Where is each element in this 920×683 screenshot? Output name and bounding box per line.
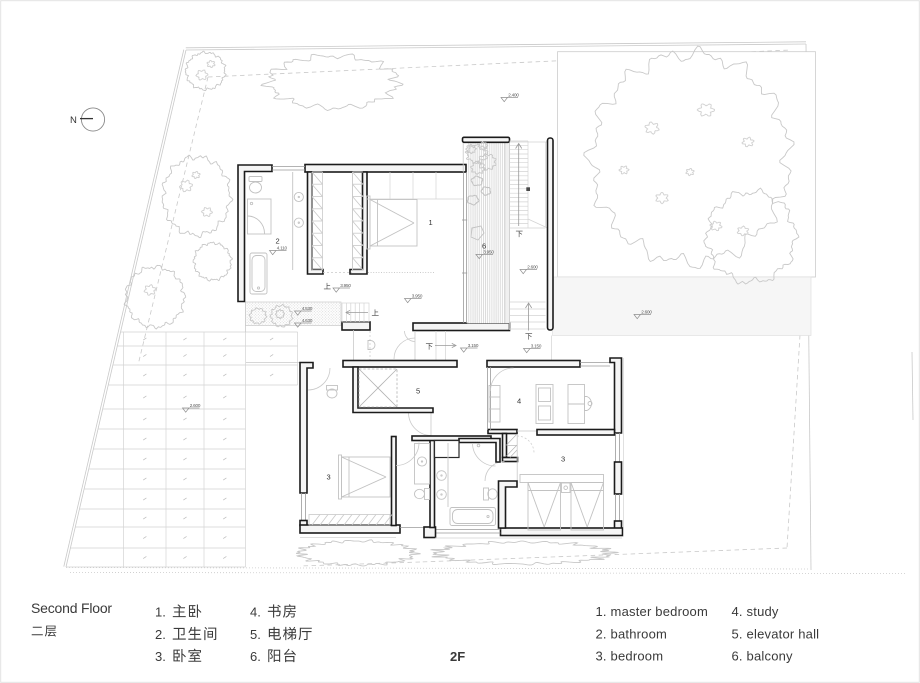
svg-text:4.530: 4.530: [302, 306, 313, 311]
svg-text:5. elevator hall: 5. elevator hall: [732, 627, 820, 642]
svg-text:6. balcony: 6. balcony: [732, 649, 794, 664]
svg-text:3.950: 3.950: [412, 293, 423, 298]
svg-text:4. study: 4. study: [732, 604, 779, 619]
svg-text:1: 1: [429, 218, 433, 227]
svg-text:4.: 4.: [250, 605, 261, 620]
svg-text:3: 3: [327, 473, 331, 482]
svg-text:3.150: 3.150: [468, 343, 479, 348]
svg-text:2.600: 2.600: [527, 264, 538, 269]
svg-text:2. bathroom: 2. bathroom: [596, 627, 668, 642]
svg-text:5: 5: [416, 387, 420, 396]
svg-text:3.950: 3.950: [483, 249, 494, 254]
svg-text:2: 2: [276, 237, 280, 246]
svg-text:Second Floor: Second Floor: [31, 600, 112, 616]
svg-text:2F: 2F: [450, 649, 465, 664]
svg-text:4.110: 4.110: [277, 245, 288, 250]
svg-text:1. master bedroom: 1. master bedroom: [596, 604, 709, 619]
svg-text:3. bedroom: 3. bedroom: [596, 649, 664, 664]
svg-text:2.600: 2.600: [190, 403, 201, 408]
svg-text:2.: 2.: [155, 627, 166, 642]
svg-text:6.: 6.: [250, 649, 261, 664]
svg-text:N: N: [70, 115, 77, 126]
svg-text:2.600: 2.600: [641, 309, 652, 314]
svg-text:3.950: 3.950: [340, 283, 351, 288]
svg-text:3.150: 3.150: [531, 343, 542, 348]
svg-text:1.: 1.: [155, 605, 166, 620]
svg-text:3.: 3.: [155, 649, 166, 664]
svg-text:4: 4: [517, 397, 521, 406]
svg-text:5.: 5.: [250, 627, 261, 642]
svg-text:3: 3: [561, 455, 565, 464]
svg-text:2.400: 2.400: [508, 92, 519, 97]
svg-text:4.630: 4.630: [302, 318, 313, 323]
